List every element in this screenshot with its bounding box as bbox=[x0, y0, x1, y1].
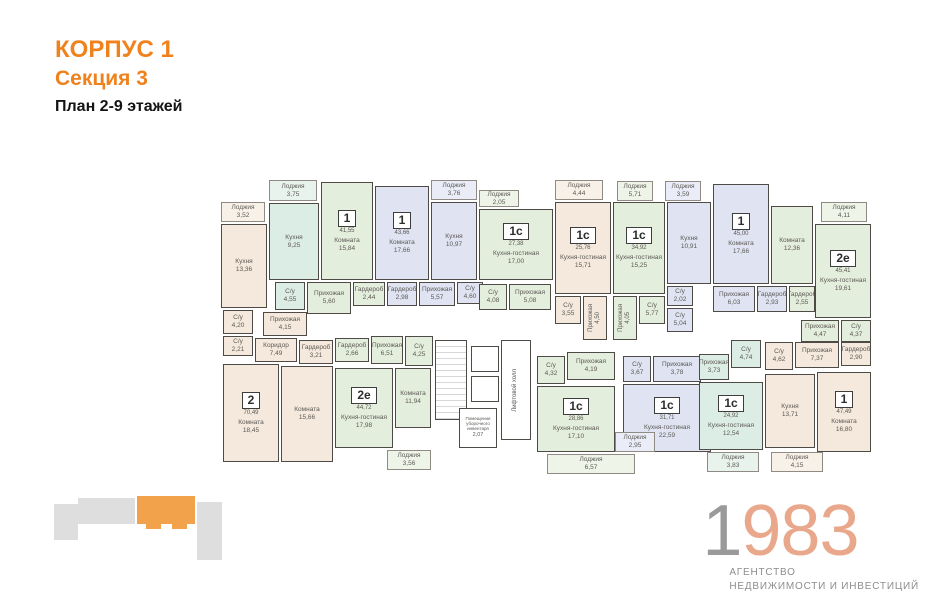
room-label: Кухня-гостиная bbox=[708, 422, 754, 430]
room-label: С/у bbox=[851, 323, 861, 331]
room-label: Прихожая bbox=[515, 289, 545, 297]
room-area: 4,05 bbox=[625, 312, 632, 324]
building-minimap bbox=[48, 492, 228, 582]
room-area: 9,25 bbox=[288, 242, 301, 250]
room-label: Прихожая bbox=[372, 342, 402, 350]
apartment-unit: 145,00Комната17,66 bbox=[713, 184, 769, 284]
room-label: Кухня-гостиная bbox=[493, 250, 539, 258]
room-label: С/у bbox=[675, 288, 685, 296]
room-lodge: Лоджия3,52 bbox=[221, 202, 265, 222]
room-lodge: Лоджия4,11 bbox=[821, 202, 867, 222]
page: КОРПУС 1 Секция 3 План 2-9 этажей Лоджия… bbox=[0, 0, 941, 600]
room-lodge: Лоджия3,56 bbox=[387, 450, 431, 470]
elevator-shaft bbox=[471, 376, 499, 402]
room-label: Гардероб bbox=[789, 291, 815, 299]
room-lodge: Лоджия6,57 bbox=[547, 454, 635, 474]
apartment-total-area: 24,92 bbox=[723, 413, 738, 420]
room-area: 3,21 bbox=[310, 352, 323, 360]
room-label: Прихожая bbox=[805, 323, 835, 331]
room-lodge: Лоджия5,71 bbox=[617, 181, 653, 201]
room-area: 12,36 bbox=[784, 245, 800, 253]
logo-subtitle-line2: НЕДВИЖИМОСТИ И ИНВЕСТИЦИЙ bbox=[729, 580, 919, 594]
room-area: 3,78 bbox=[671, 369, 684, 377]
room-area: 4,08 bbox=[487, 297, 500, 305]
apartment-total-area: 47,49 bbox=[836, 409, 851, 416]
room-label: Гардероб bbox=[355, 286, 384, 294]
room-label: Лоджия bbox=[623, 434, 646, 442]
room-label: Гардероб bbox=[388, 286, 417, 294]
room: Гардероб2,98 bbox=[387, 282, 417, 306]
room: Гардероб2,55 bbox=[789, 286, 815, 312]
room-area: 3,73 bbox=[708, 367, 721, 375]
minimap-section-1 bbox=[54, 504, 78, 540]
room-area: 19,61 bbox=[835, 285, 851, 293]
room-lodge: Лоджия4,44 bbox=[555, 180, 603, 200]
room: Кухня10,97 bbox=[431, 202, 477, 280]
room-label: С/у bbox=[647, 302, 657, 310]
room: С/у4,74 bbox=[731, 340, 761, 368]
room-label: Гардероб bbox=[842, 346, 871, 354]
room-area: 4,50 bbox=[595, 312, 602, 324]
room-area: 15,71 bbox=[575, 262, 591, 270]
room-label: Лоджия bbox=[487, 191, 510, 199]
room-area: 4,62 bbox=[773, 356, 786, 364]
room-label: Лоджия bbox=[397, 452, 420, 460]
room-label: Гардероб bbox=[758, 291, 787, 299]
room: Прихожая5,57 bbox=[419, 282, 455, 306]
apartment-unit: 147,49Комната16,80 bbox=[817, 372, 871, 452]
room-label: Комната bbox=[779, 237, 804, 245]
room-area: 5,08 bbox=[524, 297, 537, 305]
room-label: Кухня-гостиная bbox=[341, 414, 387, 422]
room-area: 5,77 bbox=[646, 310, 659, 318]
room-label: Кухня-гостиная bbox=[820, 277, 866, 285]
room-area: 13,36 bbox=[236, 266, 252, 274]
room: Прихожая3,78 bbox=[653, 356, 701, 382]
room-label: Лоджия bbox=[721, 454, 744, 462]
room: С/у4,20 bbox=[223, 310, 253, 334]
room-label: Прихожая bbox=[314, 290, 344, 298]
room-area: 6,51 bbox=[381, 350, 394, 358]
apartment-type-badge: 1с bbox=[563, 398, 588, 415]
agency-logo: 1983 АГЕНТСТВО НЕДВИЖИМОСТИ И ИНВЕСТИЦИЙ bbox=[702, 497, 919, 593]
room-label: Комната bbox=[294, 406, 319, 414]
room: Кухня13,71 bbox=[765, 374, 815, 448]
room-label: Комната bbox=[334, 237, 359, 245]
room: С/у3,67 bbox=[623, 356, 651, 382]
apartment-unit: 2е45,41Кухня-гостиная19,61 bbox=[815, 224, 871, 318]
logo-year-983: 983 bbox=[741, 491, 858, 571]
room: Комната11,94 bbox=[395, 368, 431, 428]
apartment-type-badge: 1с bbox=[718, 395, 743, 412]
room: С/у3,55 bbox=[555, 296, 581, 324]
logo-year: 1983 bbox=[702, 497, 919, 565]
room: Гардероб3,21 bbox=[299, 340, 333, 364]
room-label: С/у bbox=[465, 285, 475, 293]
apartment-total-area: 45,41 bbox=[835, 268, 850, 275]
room-area: 6,57 bbox=[585, 464, 598, 472]
room-area: 2,95 bbox=[629, 442, 642, 450]
room: С/у2,02 bbox=[667, 286, 693, 306]
room-label: С/у bbox=[414, 343, 424, 351]
room-label: Прихожая bbox=[576, 358, 606, 366]
room-label: Прихожая bbox=[588, 304, 595, 332]
room-label: Кухня-гостиная bbox=[560, 254, 606, 262]
room: С/у4,55 bbox=[275, 282, 305, 310]
room-lodge: Лоджия3,59 bbox=[665, 181, 701, 201]
room-area: 15,84 bbox=[339, 245, 355, 253]
apartment-type-badge: 1с bbox=[626, 227, 651, 244]
room-label: С/у bbox=[563, 302, 573, 310]
room: Прихожая4,47 bbox=[801, 320, 839, 342]
plan-header: КОРПУС 1 Секция 3 План 2-9 этажей bbox=[55, 36, 182, 116]
room-label: С/у bbox=[675, 312, 685, 320]
apartment-total-area: 70,49 bbox=[243, 410, 258, 417]
room-area: 4,20 bbox=[232, 322, 245, 330]
room-label: Комната bbox=[831, 418, 856, 426]
room-label: Прихожая bbox=[699, 359, 729, 367]
room-lodge: Лоджия3,83 bbox=[707, 452, 759, 472]
minimap-section-3-notch bbox=[172, 524, 187, 529]
room-area: 22,59 bbox=[659, 432, 675, 440]
room: Комната12,36 bbox=[771, 206, 813, 284]
room-label: Гардероб bbox=[302, 344, 331, 352]
room-area: 10,91 bbox=[681, 243, 697, 251]
room-label: Прихожая bbox=[662, 361, 692, 369]
room: Коридор7,49 bbox=[255, 338, 297, 362]
floorplan: Лоджия3,52Лоджия3,75Лоджия3,76Лоджия2,05… bbox=[215, 150, 875, 480]
room-area: 10,97 bbox=[446, 241, 462, 249]
room-label: Коридор bbox=[263, 342, 289, 350]
room-area: 3,83 bbox=[727, 462, 740, 470]
apartment-unit: 1с25,76Кухня-гостиная15,71 bbox=[555, 202, 611, 294]
room-area: 17,00 bbox=[508, 258, 524, 266]
room-area: 17,98 bbox=[356, 422, 372, 430]
room: Гардероб2,90 bbox=[841, 342, 871, 366]
room-area: 2,07 bbox=[473, 432, 484, 439]
room: Кухня10,91 bbox=[667, 202, 711, 284]
room-label: С/у bbox=[285, 288, 295, 296]
room-lodge: Лоджия3,75 bbox=[269, 180, 317, 201]
room: Комната15,66 bbox=[281, 366, 333, 462]
room: Гардероб2,93 bbox=[757, 286, 787, 312]
room-area: 2,55 bbox=[796, 299, 809, 307]
room-label: Кухня bbox=[781, 403, 798, 411]
apartment-unit: 1с24,92Кухня-гостиная12,54 bbox=[699, 382, 763, 450]
room: Прихожая6,03 bbox=[713, 286, 755, 312]
room-label: Прихожая bbox=[618, 304, 625, 332]
apartment-unit: 1с28,86Кухня-гостиная17,10 bbox=[537, 386, 615, 452]
room: Прихожая5,60 bbox=[307, 282, 351, 314]
room-label: Кухня bbox=[445, 233, 462, 241]
apartment-type-badge: 2е bbox=[830, 250, 855, 267]
room-area: 4,25 bbox=[413, 351, 426, 359]
elevator-shaft bbox=[471, 346, 499, 372]
room: Кухня9,25 bbox=[269, 203, 319, 280]
room-area: 17,66 bbox=[394, 247, 410, 255]
minimap-section-3-notch bbox=[146, 524, 161, 529]
room-area: 2,44 bbox=[363, 294, 376, 302]
room-label: С/у bbox=[774, 348, 784, 356]
room-area: 2,21 bbox=[232, 346, 245, 354]
apartment-unit: 2е44,72Кухня-гостиная17,98 bbox=[335, 368, 393, 448]
apartment-unit: 1с34,92Кухня-гостиная15,25 bbox=[613, 202, 665, 294]
room: С/у4,25 bbox=[405, 336, 433, 366]
room: С/у4,08 bbox=[479, 284, 507, 310]
room-area: 4,55 bbox=[284, 296, 297, 304]
room-label: С/у bbox=[741, 346, 751, 354]
room-area: 3,75 bbox=[287, 191, 300, 199]
room: Гардероб2,44 bbox=[353, 282, 385, 306]
room-area: 2,05 bbox=[493, 199, 506, 207]
room-label: Прихожая bbox=[270, 316, 300, 324]
room: Кухня13,36 bbox=[221, 224, 267, 308]
room-label: С/у bbox=[632, 361, 642, 369]
room-label: Кухня bbox=[680, 235, 697, 243]
apartment-total-area: 25,76 bbox=[575, 245, 590, 252]
room: Прихожая4,05 bbox=[613, 296, 637, 340]
room-area: 5,04 bbox=[674, 320, 687, 328]
room-label: Кухня bbox=[235, 258, 252, 266]
room-area: 3,59 bbox=[677, 191, 690, 199]
room: Прихожая5,08 bbox=[509, 284, 551, 310]
apartment-type-badge: 1с bbox=[570, 227, 595, 244]
room-label: Гардероб bbox=[338, 342, 367, 350]
apartment-total-area: 28,86 bbox=[568, 416, 583, 423]
room: С/у5,77 bbox=[639, 296, 665, 324]
room: Прихожая4,15 bbox=[263, 312, 307, 336]
room: Прихожая4,19 bbox=[567, 352, 615, 380]
room: Прихожая6,51 bbox=[371, 336, 403, 364]
room: С/у2,21 bbox=[223, 336, 253, 356]
room-area: 5,57 bbox=[431, 294, 444, 302]
room-area: 4,15 bbox=[279, 324, 292, 332]
room-label: Помещение уборочного инвентаря bbox=[461, 417, 495, 432]
room-area: 12,54 bbox=[723, 430, 739, 438]
room: Прихожая7,37 bbox=[795, 342, 839, 368]
room: Прихожая4,50 bbox=[583, 296, 607, 340]
room: С/у4,62 bbox=[765, 342, 793, 370]
room-area: 3,52 bbox=[237, 212, 250, 220]
room-label: Прихожая bbox=[802, 347, 832, 355]
room: С/у4,37 bbox=[841, 320, 871, 342]
room-area: 4,44 bbox=[573, 190, 586, 198]
apartment-unit: 143,66Комната17,66 bbox=[375, 186, 429, 280]
room-label: Лоджия bbox=[231, 204, 254, 212]
room-area: 5,71 bbox=[629, 191, 642, 199]
room-label: Лоджия bbox=[442, 182, 465, 190]
apartment-type-badge: 1 bbox=[393, 212, 412, 229]
room-label: Лоджия bbox=[832, 204, 855, 212]
room-label: С/у bbox=[546, 362, 556, 370]
room-area: 3,67 bbox=[631, 369, 644, 377]
apartment-type-badge: 1с bbox=[503, 223, 528, 240]
room-label: Кухня-гостиная bbox=[553, 425, 599, 433]
room-label: С/у bbox=[488, 289, 498, 297]
room-area: 18,45 bbox=[243, 427, 259, 435]
apartment-total-area: 27,38 bbox=[508, 241, 523, 248]
room-label: Прихожая bbox=[422, 286, 452, 294]
apartment-total-area: 43,66 bbox=[394, 230, 409, 237]
apartment-unit: 141,55Комната15,84 bbox=[321, 182, 373, 280]
room-area: 2,93 bbox=[766, 299, 779, 307]
room-area: 6,03 bbox=[728, 299, 741, 307]
room-area: 5,60 bbox=[323, 298, 336, 306]
room-lodge: Лоджия2,95 bbox=[615, 432, 655, 452]
room-label: Комната bbox=[728, 240, 753, 248]
minimap-section-2 bbox=[78, 498, 135, 524]
room-area: 16,80 bbox=[836, 426, 852, 434]
room-area: 4,60 bbox=[464, 293, 477, 301]
room-area: 17,66 bbox=[733, 248, 749, 256]
room-label: Кухня bbox=[285, 234, 302, 242]
apartment-total-area: 41,55 bbox=[339, 228, 354, 235]
apartment-total-area: 34,92 bbox=[631, 245, 646, 252]
room-label: Кухня-гостиная bbox=[644, 424, 690, 432]
room-area: 15,66 bbox=[299, 414, 315, 422]
apartment-type-badge: 1 bbox=[732, 213, 751, 230]
room: С/у4,32 bbox=[537, 356, 565, 384]
room-area: 3,55 bbox=[562, 310, 575, 318]
room: Гардероб2,66 bbox=[335, 338, 369, 362]
room-area: 2,90 bbox=[850, 354, 863, 362]
room-label: Лоджия bbox=[567, 182, 590, 190]
room-area: 4,74 bbox=[740, 354, 753, 362]
room-label: Кухня-гостиная bbox=[616, 254, 662, 262]
section-title: Секция 3 bbox=[55, 67, 182, 91]
room-area: 2,98 bbox=[396, 294, 409, 302]
minimap-section-3-active bbox=[137, 496, 195, 524]
room: Прихожая3,73 bbox=[699, 354, 729, 380]
room-area: 7,49 bbox=[270, 350, 283, 358]
room-lodge: Лоджия2,05 bbox=[479, 190, 519, 207]
room-lodge: Лоджия4,15 bbox=[771, 452, 823, 472]
room-area: 2,02 bbox=[674, 296, 687, 304]
room-label: Комната bbox=[238, 419, 263, 427]
apartment-type-badge: 2е bbox=[351, 387, 376, 404]
room-area: 4,47 bbox=[814, 331, 827, 339]
room-label: Лоджия bbox=[281, 183, 304, 191]
minimap-section-4 bbox=[197, 502, 222, 560]
room-area: 11,94 bbox=[405, 398, 421, 406]
room-area: 7,37 bbox=[811, 355, 824, 363]
room: С/у5,04 bbox=[667, 308, 693, 332]
apartment-type-badge: 2 bbox=[242, 392, 261, 409]
room-label: Лифтовой холл bbox=[512, 369, 519, 412]
room-area: 2,66 bbox=[346, 350, 359, 358]
room-area: 13,71 bbox=[782, 411, 798, 419]
apartment-unit: 1с27,38Кухня-гостиная17,00 bbox=[479, 209, 553, 280]
room-area: 17,10 bbox=[568, 433, 584, 441]
room: Помещение уборочного инвентаря2,07 bbox=[459, 408, 497, 448]
room-area: 15,25 bbox=[631, 262, 647, 270]
apartment-unit: 270,49Комната18,45 bbox=[223, 364, 279, 462]
apartment-total-area: 44,72 bbox=[356, 405, 371, 412]
building-title: КОРПУС 1 bbox=[55, 36, 182, 64]
room-label: С/у bbox=[233, 314, 243, 322]
room-label: С/у bbox=[233, 338, 243, 346]
apartment-type-badge: 1 bbox=[338, 210, 357, 227]
room-label: Лоджия bbox=[579, 456, 602, 464]
room-label: Прихожая bbox=[719, 291, 749, 299]
room-area: 4,32 bbox=[545, 370, 558, 378]
room-lodge: Лоджия3,76 bbox=[431, 180, 477, 200]
room: Лифтовой холл bbox=[501, 340, 531, 440]
apartment-type-badge: 1с bbox=[654, 397, 679, 414]
apartment-total-area: 31,71 bbox=[659, 415, 674, 422]
floors-label: План 2-9 этажей bbox=[55, 98, 182, 116]
room-label: Лоджия bbox=[785, 454, 808, 462]
apartment-total-area: 45,00 bbox=[733, 231, 748, 238]
room-label: Лоджия bbox=[671, 183, 694, 191]
logo-year-1: 1 bbox=[702, 491, 741, 571]
room-area: 4,37 bbox=[850, 331, 863, 339]
room-area: 3,56 bbox=[403, 460, 416, 468]
room-label: Комната bbox=[389, 239, 414, 247]
room-area: 3,76 bbox=[448, 190, 461, 198]
room-label: Комната bbox=[400, 390, 425, 398]
apartment-type-badge: 1 bbox=[835, 391, 854, 408]
room-area: 4,19 bbox=[585, 366, 598, 374]
room-label: Лоджия bbox=[623, 183, 646, 191]
room-area: 4,15 bbox=[791, 462, 804, 470]
room-area: 4,11 bbox=[838, 212, 850, 220]
